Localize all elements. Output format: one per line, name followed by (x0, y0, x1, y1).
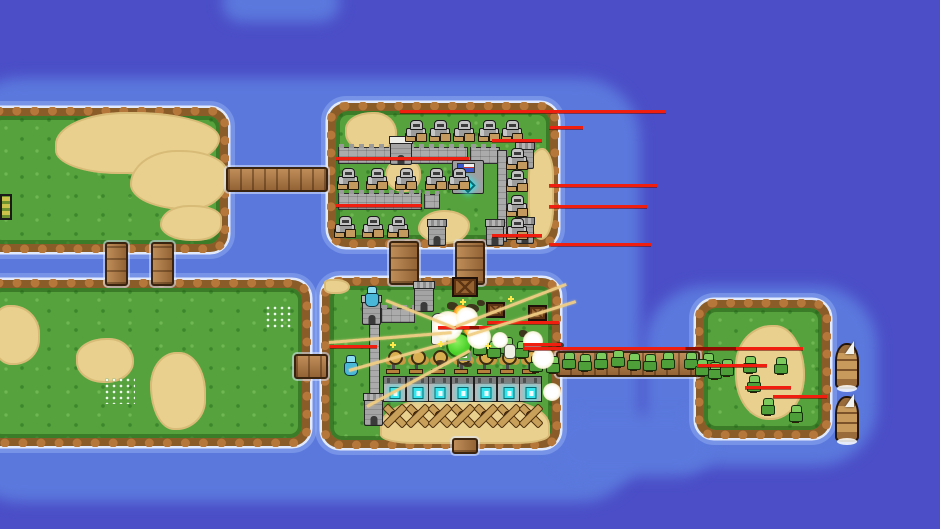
explosion-effect (532, 347, 554, 369)
green-enemy-unit[interactable] (626, 353, 641, 371)
bridge-mid-1[interactable] (389, 241, 419, 285)
sparkle-effect (462, 301, 464, 303)
gray-tank-unit[interactable] (394, 168, 418, 190)
pier-south[interactable] (452, 438, 478, 454)
cyan-mage-unit[interactable] (342, 355, 358, 375)
yellow-structure[interactable] (0, 194, 12, 220)
skeleton-unit (504, 344, 516, 359)
island-bottom-left[interactable] (0, 280, 310, 446)
sparkle-effect (392, 344, 394, 346)
water-shallow-patch (222, 0, 340, 22)
island-grass (0, 288, 302, 438)
stone-tower[interactable] (414, 284, 434, 312)
game-map[interactable] (0, 0, 940, 529)
red-laser-beam (549, 184, 657, 187)
gray-tank-unit[interactable] (336, 168, 360, 190)
cross-turret[interactable] (474, 404, 496, 426)
water-shallow-patch (552, 414, 712, 476)
transport-ship[interactable] (835, 396, 859, 442)
red-laser-beam (523, 347, 803, 350)
red-laser-beam (523, 343, 561, 346)
green-enemy-unit[interactable] (610, 350, 625, 368)
flower-cluster (105, 378, 135, 404)
cross-turret[interactable] (519, 404, 541, 426)
green-enemy-unit[interactable] (642, 354, 657, 372)
cross-turret[interactable] (497, 404, 519, 426)
gray-tank-unit[interactable] (452, 120, 476, 142)
red-laser-beam (745, 386, 791, 389)
red-laser-beam (549, 126, 583, 129)
energy-generator[interactable] (519, 376, 542, 402)
red-laser-beam (549, 243, 651, 246)
green-enemy-unit[interactable] (760, 398, 775, 416)
gray-tank-unit[interactable] (505, 195, 529, 217)
green-enemy-unit[interactable] (773, 357, 788, 375)
sparkle-effect (487, 345, 489, 347)
sand-patch (76, 338, 134, 383)
green-enemy-unit[interactable] (593, 352, 608, 370)
bridge-left-2[interactable] (151, 242, 174, 286)
gray-tank-unit[interactable] (424, 168, 448, 190)
gray-tank-unit[interactable] (386, 216, 410, 238)
green-enemy-unit[interactable] (561, 352, 576, 370)
red-laser-beam (697, 364, 767, 367)
energy-generator[interactable] (451, 376, 474, 402)
debris (463, 362, 472, 367)
green-enemy-unit[interactable] (746, 375, 761, 393)
gray-tank-unit[interactable] (428, 120, 452, 142)
sand-patch (324, 279, 350, 294)
flower-cluster (266, 306, 294, 330)
sand-patch (130, 150, 228, 210)
debris (477, 300, 485, 306)
cyan-mage-unit[interactable] (363, 286, 379, 306)
stone-tower[interactable] (428, 222, 446, 246)
gray-tank-unit[interactable] (333, 216, 357, 238)
red-laser-beam (492, 234, 542, 237)
gray-tank-unit[interactable] (505, 148, 529, 170)
bridge-bottomleft-base[interactable] (294, 354, 328, 379)
gray-tank-unit[interactable] (361, 216, 385, 238)
stone-wall[interactable] (424, 194, 440, 209)
cross-turret[interactable] (406, 404, 428, 426)
stone-tower[interactable] (390, 139, 412, 165)
sparkle-effect (510, 298, 512, 300)
red-laser-beam (492, 139, 542, 142)
energy-generator[interactable] (497, 376, 520, 402)
stone-wall[interactable] (338, 193, 422, 210)
energy-generator[interactable] (428, 376, 451, 402)
red-laser-beam (336, 157, 469, 160)
supply-crate[interactable] (452, 277, 478, 297)
gray-tank-unit[interactable] (404, 120, 428, 142)
sparkle-effect (440, 343, 442, 345)
red-laser-beam (549, 205, 647, 208)
sand-patch (160, 205, 222, 241)
green-enemy-unit[interactable] (719, 359, 734, 377)
red-laser-beam (330, 345, 377, 348)
green-enemy-unit[interactable] (577, 354, 592, 372)
cross-turret[interactable] (383, 404, 405, 426)
bridge-left-1[interactable] (105, 242, 128, 286)
gray-tank-unit[interactable] (505, 170, 529, 192)
explosion-effect (543, 383, 561, 401)
transport-ship[interactable] (835, 343, 859, 389)
gray-tank-unit[interactable] (365, 168, 389, 190)
cross-turret[interactable] (451, 404, 473, 426)
energy-generator[interactable] (474, 376, 497, 402)
red-laser-beam (773, 395, 827, 398)
sand-patch (150, 352, 206, 430)
cross-turret[interactable] (428, 404, 450, 426)
bridge-topleft-topmiddle[interactable] (226, 167, 328, 192)
green-enemy-unit[interactable] (660, 352, 675, 370)
explosion-effect (492, 332, 508, 348)
green-enemy-unit[interactable] (788, 405, 803, 423)
gray-tank-unit[interactable] (447, 168, 471, 190)
red-laser-beam (400, 110, 666, 113)
red-laser-beam (336, 204, 422, 207)
